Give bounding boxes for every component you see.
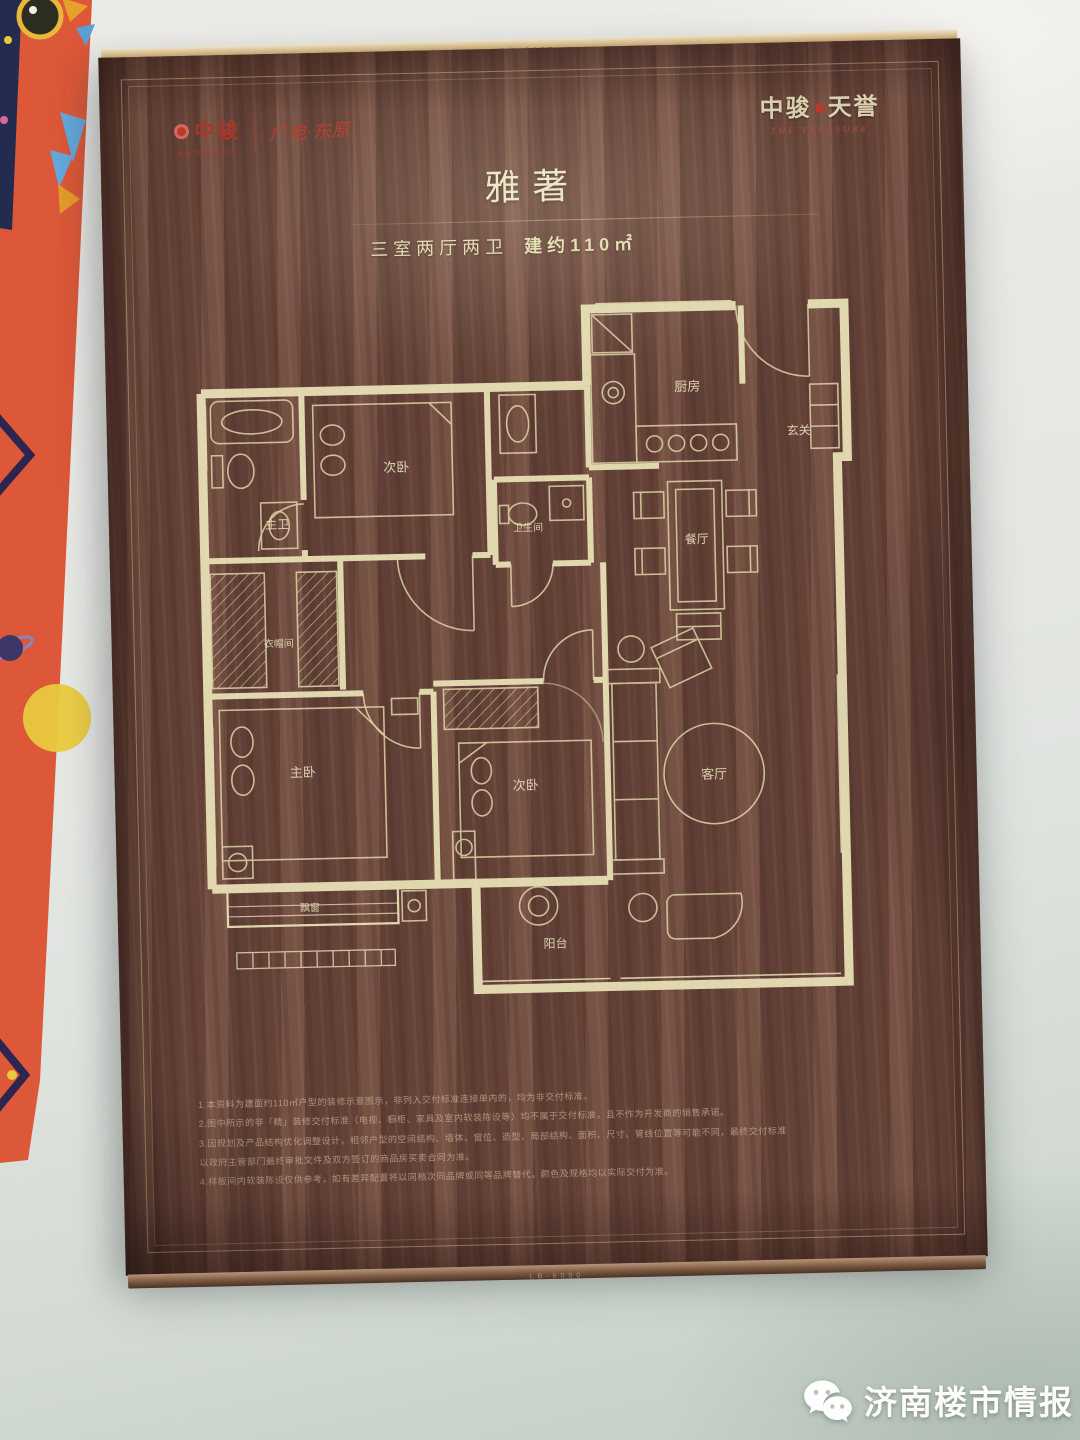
brand-mark-icon [174, 123, 189, 138]
room-label-bathroom: 卫生间 [513, 521, 543, 535]
pattern-dot [4, 36, 12, 44]
pattern-dot [7, 1070, 17, 1080]
brand-block: 中骏 美好生活服务商 [174, 115, 241, 159]
developer-logo: 中骏 美好生活服务商 广电·东原 [174, 112, 351, 159]
room-label-bedroom-mid: 次卧 [513, 778, 539, 795]
brand-tagline: 美好生活服务商 [176, 148, 239, 159]
room-label-foyer: 玄关 [786, 422, 810, 438]
room-label-bay-window: 飘窗 [300, 901, 320, 914]
poster: 中骏 美好生活服务商 广电·东原 中骏天誉 THE TREASURE 雅著 三室… [98, 38, 987, 1275]
floorplan-svg: 次卧 主卫 卫生间 厨房 玄关 餐厅 衣帽间 主卧 次卧 客厅 阳台 飘窗 [194, 290, 902, 1008]
area-spec: 建约110㎡ [524, 234, 637, 257]
project-logo: 中骏天誉 THE TREASURE [759, 86, 880, 136]
project-name-left: 中骏 [759, 95, 812, 123]
red-dot-icon [816, 104, 824, 112]
pattern-dot [0, 116, 8, 124]
room-label-master-bath: 主卫 [265, 517, 289, 532]
yellow-circle [23, 684, 91, 752]
room-label-balcony: 阳台 [543, 935, 567, 951]
room-label-closet: 衣帽间 [264, 637, 294, 651]
edge-stamp-text: LB-6000 [530, 1272, 585, 1280]
partner-logo: 广电·东原 [268, 116, 351, 147]
room-label-living: 客厅 [701, 766, 727, 783]
room-label-bedroom-top: 次卧 [383, 459, 409, 476]
photo-scene: LB-6000 中骏 美好生活服务商 广电·东原 中骏天誉 THE TREASU… [0, 0, 1080, 1440]
room-spec: 三室两厅两卫 [370, 237, 508, 260]
project-name: 中骏天誉 [759, 86, 880, 124]
project-name-right: 天誉 [827, 93, 880, 121]
disclaimer-notes: 1.本资料为建面约110㎡户型的装修示意图示，非列入交付标准连接单内的，均为非交… [198, 1081, 880, 1193]
brand-name: 中骏 [194, 115, 241, 146]
floorplan-board: LB-6000 中骏 美好生活服务商 广电·东原 中骏天誉 THE TREASU… [98, 38, 987, 1275]
watermark: 济南楼市情报 [802, 1376, 1074, 1424]
room-label-master-bedroom: 主卧 [290, 766, 316, 782]
divider [254, 116, 256, 150]
scale-bar [237, 949, 396, 969]
room-label-kitchen: 厨房 [674, 379, 700, 396]
room-label-dining: 餐厅 [685, 531, 709, 547]
wechat-icon [802, 1378, 854, 1422]
watermark-label: 济南楼市情报 [864, 1376, 1074, 1424]
